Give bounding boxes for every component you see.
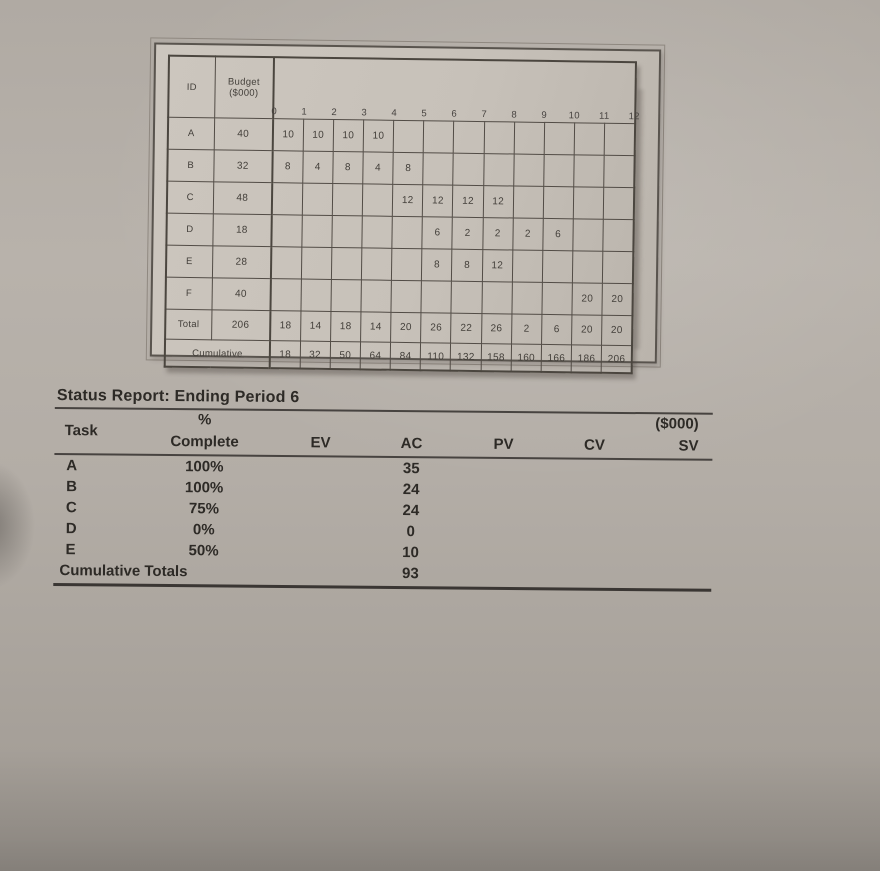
period-10-cell (542, 250, 573, 282)
cumulative-period-6-cell: 110 (420, 343, 451, 371)
ac-column-header: AC (401, 435, 423, 452)
task-label: B (66, 476, 77, 497)
total-period-7-cell: 22 (451, 313, 482, 343)
period-1-cell (272, 183, 303, 215)
figure-frame: ID Budget ($000) 0123456789101112 A40101… (150, 42, 661, 363)
period-1-cell (271, 247, 302, 279)
period-3-cell (332, 215, 363, 247)
period-9-cell (513, 186, 544, 218)
period-12-cell (604, 123, 635, 155)
pct-complete-value: 50% (188, 540, 218, 561)
percent-symbol-header: % (198, 411, 211, 428)
period-9-cell (514, 122, 545, 154)
period-1-cell: 8 (272, 151, 303, 183)
period-8-cell: 2 (482, 218, 513, 250)
budget-header-cell: Budget ($000) (214, 56, 274, 118)
period-4-cell: 4 (363, 152, 394, 184)
status-report: Status Report: Ending Period 6 Task % ($… (53, 387, 713, 592)
period-3-cell (332, 183, 363, 215)
period-12-cell (604, 187, 635, 219)
timeline-tick-10: 10 (569, 110, 580, 121)
task-id-cell: C (167, 181, 213, 214)
timeline-tick-11: 11 (599, 111, 610, 122)
task-column-header: Task (65, 422, 98, 439)
photo-of-worksheet-page: { "figure": { "header": { "id": "ID", "b… (0, 0, 880, 871)
period-10-cell: 6 (543, 218, 574, 250)
cv-column-header: CV (584, 437, 605, 454)
period-9-cell: 2 (513, 218, 544, 250)
ac-value: 35 (403, 458, 420, 479)
period-5-cell: 12 (392, 184, 423, 216)
pct-complete-value: 100% (185, 456, 224, 477)
period-11-cell (574, 155, 605, 187)
period-6-cell (421, 281, 452, 313)
ac-value: 10 (402, 542, 419, 563)
period-6-cell: 12 (423, 185, 454, 217)
total-period-3-cell: 18 (330, 311, 361, 341)
total-period-1-cell: 18 (270, 311, 301, 341)
timeline-tick-3: 3 (361, 107, 367, 118)
cumulative-row: Cumulative183250648411013215816016618620… (165, 339, 632, 373)
period-7-cell: 2 (452, 217, 483, 249)
task-budget-cell: 28 (212, 246, 271, 279)
period-7-cell (451, 281, 482, 313)
timeline-tick-1: 1 (301, 107, 307, 118)
cumulative-period-3-cell: 50 (330, 341, 361, 369)
task-label: D (66, 518, 77, 539)
cumulative-totals-label: Cumulative Totals (59, 560, 187, 583)
pct-complete-value: 75% (189, 498, 219, 519)
pct-complete-value: 100% (185, 477, 224, 498)
timeline-tick-8: 8 (511, 109, 517, 120)
ac-value: 0 (406, 521, 415, 542)
period-3-cell: 8 (333, 151, 364, 183)
period-6-cell: 6 (422, 217, 453, 249)
period-12-cell (604, 155, 635, 187)
period-9-cell (513, 154, 544, 186)
task-id-cell: F (165, 277, 211, 310)
period-10-cell (543, 186, 574, 218)
period-10-cell (544, 154, 575, 186)
period-7-cell: 8 (452, 249, 483, 281)
period-5-cell: 8 (393, 152, 424, 184)
period-2-cell: 4 (302, 151, 333, 183)
period-11-cell (573, 219, 604, 251)
period-7-cell (454, 121, 485, 153)
task-label: A (66, 455, 77, 476)
task-id-cell: A (168, 117, 214, 150)
ev-column-header: EV (310, 434, 330, 451)
budget-schedule-table: ID Budget ($000) 0123456789101112 A40101… (164, 55, 637, 375)
period-2-cell (301, 247, 332, 279)
period-1-cell (270, 279, 301, 311)
period-12-cell: 20 (602, 283, 633, 315)
total-label-cell: Total (165, 309, 211, 340)
timeline-header-cell: 0123456789101112 (273, 57, 636, 124)
cumulative-ac-value: 93 (402, 563, 419, 585)
period-6-cell (423, 121, 454, 153)
cumulative-label-cell: Cumulative (165, 339, 270, 368)
period-11-cell (572, 251, 603, 283)
total-budget-cell: 206 (211, 310, 270, 341)
period-3-cell (331, 279, 362, 311)
task-id-cell: B (167, 149, 213, 182)
budget-header-line1: Budget (215, 76, 273, 88)
period-12-cell (603, 219, 634, 251)
total-period-5-cell: 20 (391, 312, 422, 342)
period-4-cell (361, 280, 392, 312)
budget-table-body: ID Budget ($000) 0123456789101112 A40101… (165, 56, 636, 373)
pct-complete-value: 0% (193, 519, 215, 540)
total-period-12-cell: 20 (602, 315, 633, 345)
period-10-cell (542, 282, 573, 314)
task-budget-cell: 48 (213, 182, 272, 215)
cumulative-period-4-cell: 64 (360, 342, 391, 370)
cumulative-period-9-cell: 160 (511, 344, 542, 372)
period-12-cell (603, 251, 634, 283)
period-7-cell (453, 153, 484, 185)
period-5-cell (392, 248, 423, 280)
period-8-cell (483, 154, 514, 186)
total-period-10-cell: 6 (541, 314, 572, 344)
status-rows: A100%35B100%24C75%24D0%0E50%10 (53, 455, 712, 566)
period-4-cell (361, 248, 392, 280)
unit-label: ($000) (655, 415, 699, 432)
task-budget-cell: 40 (211, 278, 270, 311)
period-7-cell: 12 (453, 185, 484, 217)
cumulative-period-12-cell: 206 (601, 345, 632, 373)
period-5-cell (391, 280, 422, 312)
figure-header-row: ID Budget ($000) 0123456789101112 (168, 56, 636, 124)
timeline-tick-2: 2 (331, 107, 337, 118)
id-header-cell: ID (168, 56, 215, 118)
period-8-cell (484, 122, 515, 154)
timeline-tick-7: 7 (481, 109, 487, 120)
period-4-cell (362, 216, 393, 248)
pv-column-header: PV (493, 436, 513, 453)
total-period-2-cell: 14 (300, 311, 331, 341)
cumulative-period-1-cell: 18 (270, 341, 301, 369)
period-11-cell: 20 (572, 283, 603, 315)
timeline-tick-5: 5 (421, 108, 427, 119)
period-2-cell (302, 215, 333, 247)
period-2-cell: 10 (303, 119, 334, 151)
period-5-cell (392, 216, 423, 248)
task-id-cell: D (166, 213, 212, 246)
ac-value: 24 (403, 479, 420, 500)
task-budget-cell: 18 (212, 214, 271, 247)
period-11-cell (573, 187, 604, 219)
period-1-cell: 10 (273, 119, 304, 151)
cumulative-period-8-cell: 158 (481, 344, 512, 372)
ac-value: 24 (402, 500, 419, 521)
period-8-cell: 12 (482, 250, 513, 282)
period-8-cell: 12 (483, 186, 514, 218)
period-3-cell: 10 (333, 119, 364, 151)
period-4-cell (362, 184, 393, 216)
period-2-cell (302, 183, 333, 215)
period-5-cell (393, 120, 424, 152)
timeline-tick-0: 0 (271, 106, 277, 117)
period-3-cell (331, 247, 362, 279)
total-period-9-cell: 2 (511, 314, 542, 344)
sv-column-header: SV (678, 437, 698, 454)
total-period-8-cell: 26 (481, 314, 512, 344)
period-2-cell (301, 279, 332, 311)
cumulative-period-10-cell: 166 (541, 344, 572, 372)
period-11-cell (574, 123, 605, 155)
period-9-cell (512, 250, 543, 282)
task-budget-cell: 40 (214, 118, 273, 151)
complete-column-header: Complete (170, 433, 238, 451)
timeline-tick-4: 4 (391, 108, 397, 119)
budget-header-line2: ($000) (215, 87, 273, 99)
task-label: E (65, 539, 75, 560)
cumulative-period-5-cell: 84 (390, 342, 421, 370)
cumulative-period-7-cell: 132 (451, 343, 482, 371)
period-6-cell (423, 153, 454, 185)
total-period-11-cell: 20 (572, 315, 603, 345)
period-8-cell (482, 282, 513, 314)
cumulative-period-2-cell: 32 (300, 341, 331, 369)
timeline-tick-6: 6 (451, 109, 457, 120)
period-1-cell (271, 215, 302, 247)
total-period-4-cell: 14 (361, 312, 392, 342)
total-period-6-cell: 26 (421, 313, 452, 343)
task-label: C (66, 497, 77, 518)
task-id-cell: E (166, 245, 212, 278)
period-10-cell (544, 122, 575, 154)
period-6-cell: 8 (422, 249, 453, 281)
status-header-row: Task % ($000) Complete EV AC PV CV SV (54, 409, 712, 459)
timeline-tick-9: 9 (541, 110, 547, 121)
task-budget-cell: 32 (213, 150, 272, 183)
period-4-cell: 10 (363, 120, 394, 152)
cumulative-period-11-cell: 186 (571, 345, 602, 373)
budget-schedule-figure: ID Budget ($000) 0123456789101112 A40101… (146, 37, 665, 367)
period-9-cell (512, 282, 543, 314)
